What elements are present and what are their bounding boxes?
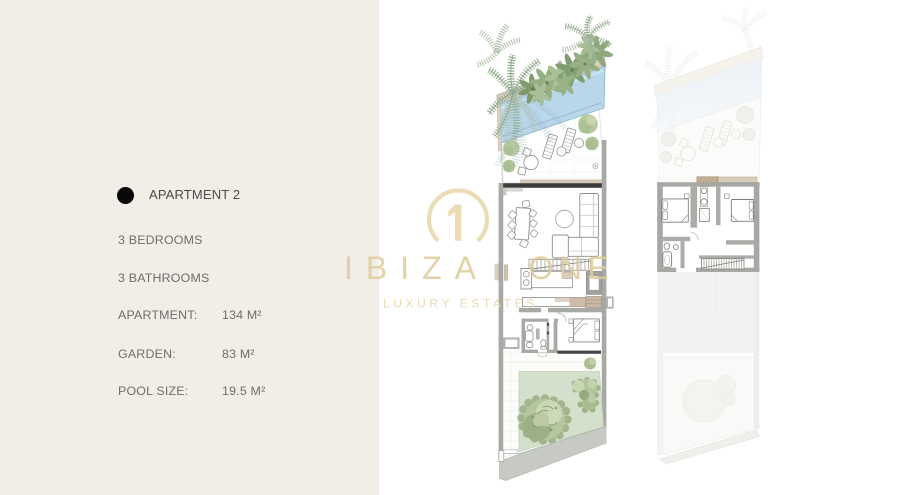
svg-text:IBIZA: IBIZA	[344, 250, 489, 286]
svg-text:ONE: ONE	[529, 250, 615, 286]
svg-text:LUXURY ESTATES: LUXURY ESTATES	[383, 297, 538, 311]
